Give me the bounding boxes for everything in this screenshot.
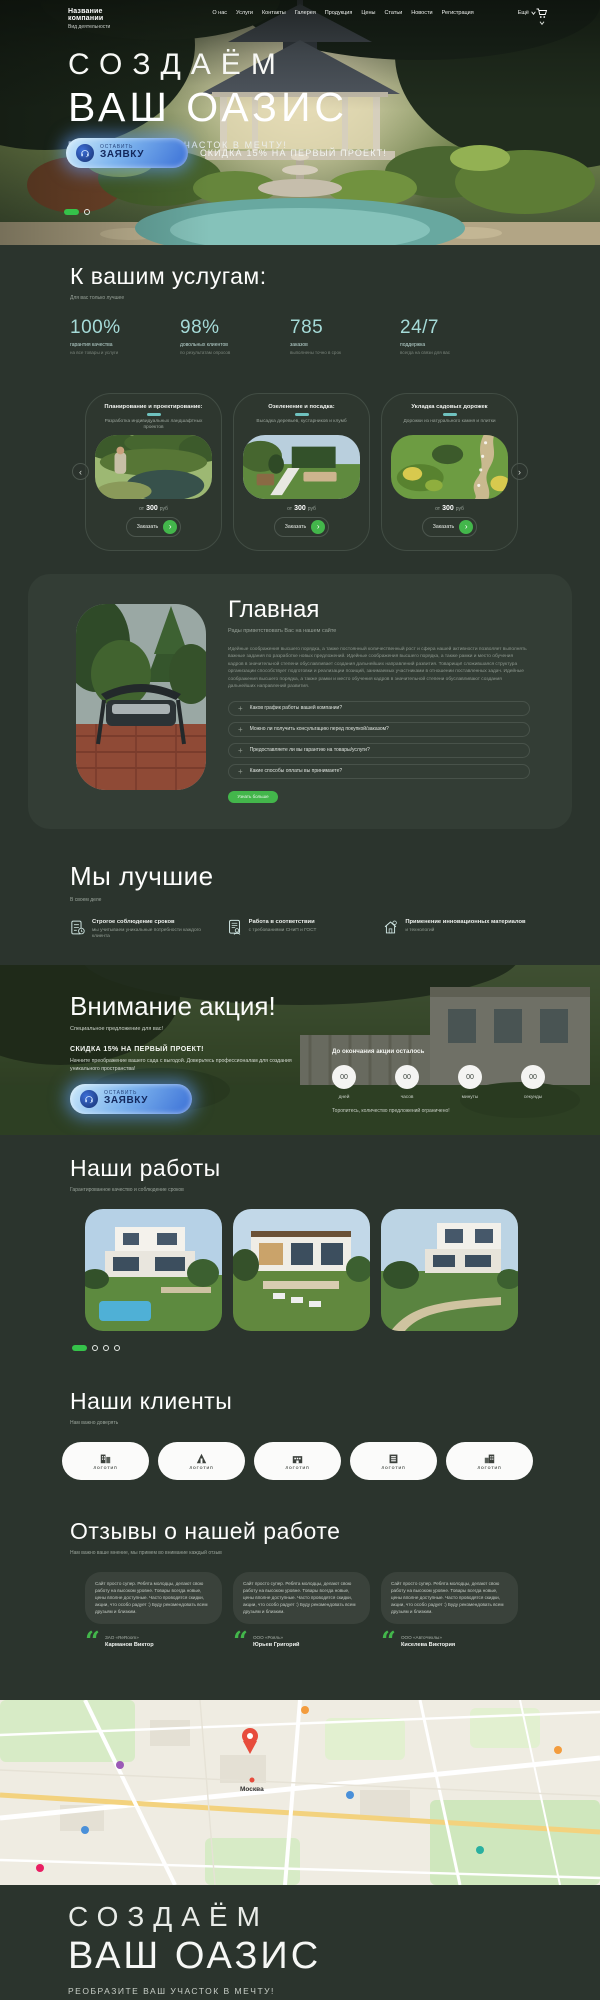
feature-texts: Работа в соответствии с требованиями СНи… [249, 919, 359, 941]
feature-title: Строгое соблюдение сроков [92, 919, 202, 925]
building-icon [483, 1453, 496, 1464]
plus-icon: + [238, 767, 243, 776]
faq-question: Какие способы оплаты вы принимаете? [250, 768, 342, 774]
client-logos-row: ЛОГОТИП ЛОГОТИП ЛОГОТИП ЛОГОТИП ЛОГОТИП [62, 1442, 540, 1480]
stat-label: гарантия качества [70, 342, 180, 348]
clients-section: Наши клиенты Нам важно доверять ЛОГОТИП … [0, 1370, 600, 1500]
nav-item-articles[interactable]: Статьи [384, 10, 402, 16]
cart-icon [536, 8, 548, 19]
review-bubble: Сайт просто супер. Ребята молодцы, делаю… [381, 1572, 518, 1624]
countdown-label: часов [401, 1095, 414, 1100]
faq-list: + Каков график работы вашей компании? + … [228, 701, 530, 779]
accent-underline [147, 413, 161, 416]
order-button-label: Заказать [433, 524, 454, 530]
client-logo-label: ЛОГОТИП [285, 1466, 309, 1470]
plus-icon: + [238, 704, 243, 713]
review-author: “ ООО «Рояль» Юрьев Григорий [233, 1629, 370, 1651]
map-section[interactable]: Москва [0, 1700, 600, 1885]
review-company: ООО «АвтоЧехлы» [401, 1635, 455, 1640]
countdown-label: секунды [524, 1095, 543, 1100]
main-content: Главная Рады приветствовать Вас на нашем… [228, 592, 550, 829]
service-card-desc: Дорожки из натурального камня и плитки [404, 419, 496, 432]
carousel-prev-button[interactable]: ‹ [72, 463, 89, 480]
review-text: Сайт просто супер. Ребята молодцы, делаю… [95, 1581, 212, 1615]
stats-row: 100% гарантия качества на все товары и у… [70, 317, 540, 355]
service-card-desc: Высадка деревьев, кустарников и клумб [256, 419, 346, 432]
price-prefix: от [287, 506, 292, 512]
stat-orders: 785 заказов выполнены точно в срок [290, 317, 400, 355]
promo-desc: Начните преображение вашего сада с выгод… [70, 1058, 300, 1074]
faq-item-warranty[interactable]: + Предоставляете ли вы гарантию на товар… [228, 743, 530, 758]
stat-support: 24/7 поддержка всегда на связи для вас [400, 317, 510, 355]
building-icon [195, 1453, 208, 1464]
feature-deadlines: Строгое соблюдение сроков мы учитываем у… [70, 919, 227, 941]
chevron-down-icon [539, 21, 545, 25]
service-card-photo [391, 435, 508, 499]
faq-item-schedule[interactable]: + Каков график работы вашей компании? [228, 701, 530, 716]
cart-button[interactable] [536, 8, 548, 25]
faq-question: Можно ли получить консультацию перед пок… [250, 726, 389, 732]
faq-question: Предоставляете ли вы гарантию на товары/… [250, 747, 370, 753]
nav-item-registration[interactable]: Регистрация [442, 10, 474, 16]
price-prefix: от [435, 506, 440, 512]
stat-label: поддержка [400, 342, 510, 348]
client-logo-label: ЛОГОТИП [189, 1466, 213, 1470]
works-slider-dots [72, 1345, 540, 1351]
client-logo-card: ЛОГОТИП [158, 1442, 245, 1480]
review-bubble: Сайт просто супер. Ребята молодцы, делаю… [233, 1572, 370, 1624]
countdown-row: 00 дней 00 часов 00 минуты 00 секунды [332, 1065, 545, 1100]
review-text: Сайт просто супер. Ребята молодцы, делаю… [243, 1581, 360, 1615]
slider-dot-active[interactable] [72, 1345, 87, 1351]
main-panel: Главная Рады приветствовать Вас на нашем… [28, 574, 572, 829]
stat-label: заказов [290, 342, 400, 348]
hero-slider-dots [64, 209, 90, 215]
nav-item-services[interactable]: Услуги [236, 10, 253, 16]
nav-item-news[interactable]: Новости [411, 10, 432, 16]
stat-quality: 100% гарантия качества на все товары и у… [70, 317, 180, 355]
countdown-block: До окончания акции осталось 00 дней 00 ч… [332, 1046, 545, 1114]
nav-more-button[interactable]: Ещё [518, 10, 536, 16]
arrow-right-icon: › [311, 520, 325, 534]
faq-item-payment[interactable]: + Какие способы оплаты вы принимаете? [228, 764, 530, 779]
clients-subtitle: Нам важно доверять [70, 1420, 540, 1426]
review-bubble: Сайт просто супер. Ребята молодцы, делаю… [85, 1572, 222, 1624]
hero-cta-button[interactable]: ОСТАВИТЬ ЗАЯВКУ [66, 138, 188, 168]
service-card-price: от300руб [435, 505, 464, 512]
main-title: Главная [228, 596, 550, 624]
service-card-price: от300руб [287, 505, 316, 512]
price-suffix: руб [308, 506, 316, 512]
service-card-title: Укладка садовых дорожек [411, 404, 487, 410]
why-us-section: Мы лучшие В своем деле Строгое соблюдени… [0, 845, 600, 965]
countdown-label: дней [339, 1095, 350, 1100]
service-card-title: Озеленение и посадка: [268, 404, 334, 410]
order-button[interactable]: Заказать › [274, 517, 329, 537]
clients-title: Наши клиенты [70, 1388, 540, 1415]
promo-content: Внимание акция! Специальное предложение … [0, 965, 600, 1114]
client-logo-card: ЛОГОТИП [446, 1442, 533, 1480]
carousel-next-button[interactable]: › [511, 463, 528, 480]
countdown-hours: 00 часов [395, 1065, 419, 1100]
client-logo-label: ЛОГОТИП [477, 1466, 501, 1470]
stat-sub: по результатам опросов [180, 350, 290, 355]
learn-more-button[interactable]: Узнать больше [228, 791, 278, 803]
stat-value: 100% [70, 317, 180, 339]
slider-dot[interactable] [92, 1345, 98, 1351]
feature-standards: Работа в соответствии с требованиями СНи… [227, 919, 384, 941]
nav-item-prices[interactable]: Цены [361, 10, 375, 16]
stat-sub: на все товары и услуги [70, 350, 180, 355]
review-card: Сайт просто супер. Ребята молодцы, делаю… [85, 1572, 222, 1651]
service-card-planting[interactable]: Озеленение и посадка: Высадка деревьев, … [233, 393, 370, 551]
order-button-label: Заказать [285, 524, 306, 530]
map-city-label: Москва [240, 1786, 264, 1793]
hero-discount-text: СКИДКА 15% НА ПЕРВЫЙ ПРОЕКТ! [200, 148, 387, 158]
slider-dot[interactable] [84, 209, 90, 215]
slider-dot-active[interactable] [64, 209, 79, 215]
building-icon [387, 1453, 400, 1464]
slider-dot[interactable] [103, 1345, 109, 1351]
stat-sub: всегда на связи для вас [400, 350, 510, 355]
hero-title-line2: ВАШ ОАЗИС [68, 84, 348, 131]
clipboard-icon [70, 919, 85, 936]
countdown-seconds: 00 секунды [521, 1065, 545, 1100]
quote-icon: “ [85, 1635, 100, 1651]
feature-texts: Строгое соблюдение сроков мы учитываем у… [92, 919, 202, 941]
countdown-note: Торопитесь, количество предложений огран… [332, 1108, 545, 1114]
hero-titles: СОЗДАЁМ ВАШ ОАЗИС РЕОБРАЗИТЕ ВАШ УЧАСТОК… [68, 48, 348, 150]
review-name: Юрьев Григорий [253, 1642, 300, 1648]
order-button[interactable]: Заказать › [126, 517, 181, 537]
countdown-title: До окончания акции осталось [332, 1048, 545, 1055]
footer-title-line1: СОЗДАЁМ [68, 1901, 600, 1933]
service-card-photo [243, 435, 360, 499]
client-logo-card: ЛОГОТИП [62, 1442, 149, 1480]
plus-icon: + [238, 725, 243, 734]
order-button-label: Заказать [137, 524, 158, 530]
headphones-icon [80, 1090, 98, 1108]
stat-value: 24/7 [400, 317, 510, 339]
main-nav: О нас Услуги Контакты Галерея Продукция … [212, 10, 473, 16]
reviews-title: Отзывы о нашей работе [70, 1518, 540, 1545]
slider-dot[interactable] [114, 1345, 120, 1351]
plus-icon: + [238, 746, 243, 755]
company-name: Название компании [68, 8, 128, 22]
stat-sub: выполнены точно в срок [290, 350, 400, 355]
reviews-subtitle: Нам важно ваше мнение, мы примем во вним… [70, 1550, 540, 1556]
countdown-value: 00 [458, 1065, 482, 1089]
countdown-value: 00 [521, 1065, 545, 1089]
main-section-photo [76, 604, 206, 790]
review-name: Киселева Виктория [401, 1642, 455, 1648]
promo-section: Внимание акция! Специальное предложение … [0, 965, 600, 1135]
company-subtitle: Вид деятельности [68, 24, 128, 30]
review-author: “ ООО «АвтоЧехлы» Киселева Виктория [381, 1629, 518, 1651]
service-card-desc: Разработка индивидуальных ландшафтных пр… [94, 419, 213, 432]
services-section: К вашим услугам: Для вас только лучшее 1… [0, 245, 600, 560]
services-title: К вашим услугам: [70, 263, 540, 290]
main-subtitle: Рады приветствовать Вас на нашем сайте [228, 628, 550, 634]
service-card-title: Планирование и проектирование: [104, 404, 202, 410]
reviews-row: Сайт просто супер. Ребята молодцы, делаю… [85, 1572, 540, 1651]
feature-materials: Применение инновационных материалов и те… [383, 919, 540, 941]
service-card-planning[interactable]: Планирование и проектирование: Разработк… [85, 393, 222, 551]
countdown-days: 00 дней [332, 1065, 356, 1100]
review-card: Сайт просто супер. Ребята молодцы, делаю… [381, 1572, 518, 1651]
promo-title: Внимание акция! [70, 991, 550, 1022]
nav-item-about[interactable]: О нас [212, 10, 227, 16]
feature-desc: и технологий [405, 928, 515, 935]
main-about-section: Главная Рады приветствовать Вас на нашем… [0, 560, 600, 845]
map-canvas[interactable] [0, 1700, 600, 1885]
countdown-label: минуты [462, 1095, 479, 1100]
client-logo-label: ЛОГОТИП [93, 1466, 117, 1470]
feature-title: Применение инновационных материалов [405, 919, 525, 925]
service-cards-carousel: Планирование и проектирование: Разработк… [85, 393, 518, 551]
feature-title: Работа в соответствии [249, 919, 359, 925]
quote-icon: “ [381, 1635, 396, 1651]
promo-cta-label: ОСТАВИТЬ ЗАЯВКУ [104, 1091, 148, 1107]
footer-tagline: РЕОБРАЗИТЕ ВАШ УЧАСТОК В МЕЧТУ! [68, 1986, 600, 1996]
stat-clients: 98% довольных клиентов по результатам оп… [180, 317, 290, 355]
review-card: Сайт просто супер. Ребята молодцы, делаю… [233, 1572, 370, 1651]
nav-item-products[interactable]: Продукция [325, 10, 353, 16]
price-value: 300 [442, 505, 454, 512]
client-logo-card: ЛОГОТИП [254, 1442, 341, 1480]
countdown-minutes: 00 минуты [458, 1065, 482, 1100]
best-title: Мы лучшие [70, 861, 540, 892]
quote-icon: “ [233, 1635, 248, 1651]
review-company: ЗАО «ReRoom» [105, 1635, 154, 1640]
client-logo-card: ЛОГОТИП [350, 1442, 437, 1480]
review-author: “ ЗАО «ReRoom» Карманов Виктор [85, 1629, 222, 1651]
promo-offer-block: СКИДКА 15% НА ПЕРВЫЙ ПРОЕКТ! Начните пре… [70, 1046, 300, 1114]
price-prefix: от [139, 506, 144, 512]
work-photo-2[interactable] [233, 1209, 370, 1331]
price-suffix: руб [456, 506, 464, 512]
cta-label-bottom: ЗАЯВКУ [100, 150, 144, 161]
stat-label: довольных клиентов [180, 342, 290, 348]
service-card-photo [95, 435, 212, 499]
promo-cta-button[interactable]: ОСТАВИТЬ ЗАЯВКУ [70, 1084, 192, 1114]
reviews-section: Отзывы о нашей работе Нам важно ваше мне… [0, 1500, 600, 1700]
stat-value: 98% [180, 317, 290, 339]
works-subtitle: Гарантированное качество и соблюдение ср… [70, 1187, 540, 1193]
countdown-value: 00 [395, 1065, 419, 1089]
best-subtitle: В своем деле [70, 897, 540, 903]
works-title: Наши работы [70, 1155, 540, 1182]
features-row: Строгое соблюдение сроков мы учитываем у… [70, 919, 540, 941]
countdown-value: 00 [332, 1065, 356, 1089]
hero-title-line1: СОЗДАЁМ [68, 48, 348, 82]
accent-underline [295, 413, 309, 416]
works-gallery [85, 1209, 540, 1331]
price-suffix: руб [160, 506, 168, 512]
accent-underline [443, 413, 457, 416]
headphones-icon [76, 144, 94, 162]
document-person-icon [227, 919, 242, 936]
feature-desc: мы учитываем уникальные потребности кажд… [92, 928, 202, 941]
works-section: Наши работы Гарантированное качество и с… [0, 1135, 600, 1370]
promo-offer: СКИДКА 15% НА ПЕРВЫЙ ПРОЕКТ! [70, 1046, 300, 1053]
faq-question: Каков график работы вашей компании? [250, 705, 342, 711]
promo-subtitle: Специальное предложение для вас! [70, 1026, 550, 1032]
service-card-price: от300руб [139, 505, 168, 512]
price-value: 300 [294, 505, 306, 512]
footer-section: СОЗДАЁМ ВАШ ОАЗИС РЕОБРАЗИТЕ ВАШ УЧАСТОК… [0, 1885, 600, 2000]
faq-item-consultation[interactable]: + Можно ли получить консультацию перед п… [228, 722, 530, 737]
review-company: ООО «Рояль» [253, 1635, 300, 1640]
review-text: Сайт просто супер. Ребята молодцы, делаю… [391, 1581, 508, 1615]
building-icon [291, 1453, 304, 1464]
house-icon [383, 919, 398, 936]
site-header: Название компании Вид деятельности О нас… [0, 8, 600, 30]
building-icon [99, 1453, 112, 1464]
brand-block[interactable]: Название компании Вид деятельности [68, 8, 128, 30]
nav-more-label: Ещё [518, 10, 529, 16]
arrow-right-icon: › [163, 520, 177, 534]
arrow-right-icon: › [459, 520, 473, 534]
feature-desc: с требованиями СНиП и ГОСТ [249, 928, 359, 935]
client-logo-label: ЛОГОТИП [381, 1466, 405, 1470]
order-button[interactable]: Заказать › [422, 517, 477, 537]
price-value: 300 [146, 505, 158, 512]
nav-item-contacts[interactable]: Контакты [262, 10, 286, 16]
work-photo-3[interactable] [381, 1209, 518, 1331]
service-card-paths[interactable]: Укладка садовых дорожек Дорожки из натур… [381, 393, 518, 551]
hero-section: Название компании Вид деятельности О нас… [0, 0, 600, 245]
review-name: Карманов Виктор [105, 1642, 154, 1648]
footer-title-line2: ВАШ ОАЗИС [68, 1935, 600, 1978]
stat-value: 785 [290, 317, 400, 339]
hero-cta-label: ОСТАВИТЬ ЗАЯВКУ [100, 145, 144, 161]
nav-item-gallery[interactable]: Галерея [295, 10, 316, 16]
services-subtitle: Для вас только лучшее [70, 295, 540, 301]
work-photo-1[interactable] [85, 1209, 222, 1331]
main-paragraph: Идейные соображения высшего порядка, а т… [228, 646, 528, 691]
cta-label-bottom: ЗАЯВКУ [104, 1096, 148, 1107]
feature-texts: Применение инновационных материалов и те… [405, 919, 525, 941]
